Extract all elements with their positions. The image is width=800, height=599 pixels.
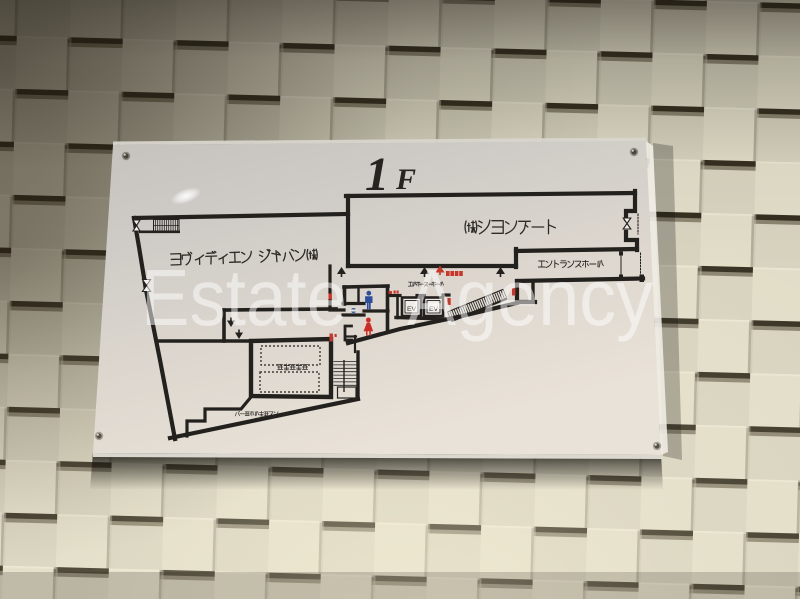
svg-text:F: F	[395, 163, 416, 196]
svg-text:1: 1	[365, 148, 389, 201]
svg-text:Estate: Estate	[141, 253, 347, 342]
svg-text:Agency: Agency	[407, 253, 653, 342]
